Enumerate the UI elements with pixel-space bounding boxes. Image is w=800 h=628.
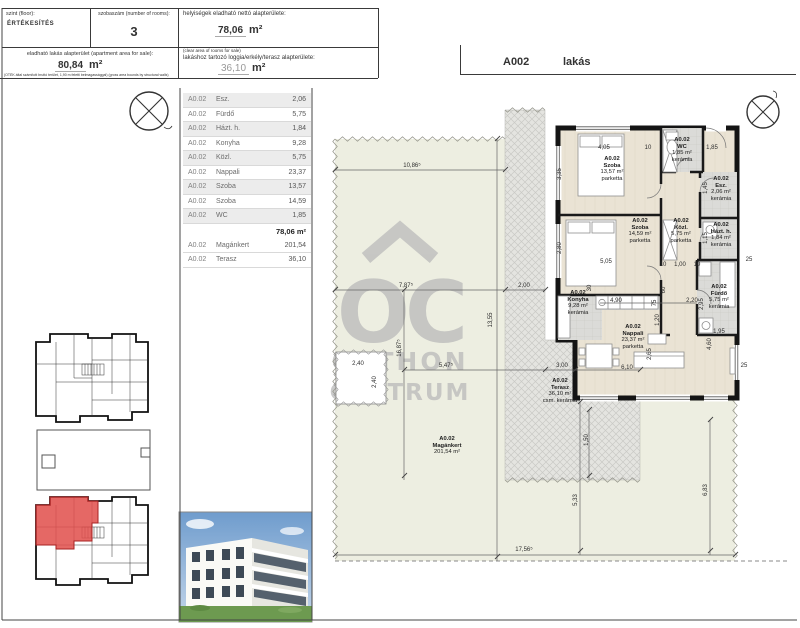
terrace-area-value: 36,10	[218, 63, 249, 75]
dimension-label: 1,85	[706, 145, 718, 151]
dimension-label: 6,10	[621, 365, 633, 371]
dimension-label: 4,60	[707, 338, 713, 350]
table-row: A0.02 Nappali 23,37	[183, 166, 311, 181]
dimension-label: 16,87⁵	[397, 339, 403, 357]
dimension-label: 6,83	[703, 484, 709, 496]
dimension-label: 1,15	[703, 232, 709, 244]
net-area-unit: m²	[249, 24, 262, 36]
sale-area-unit: m²	[89, 59, 102, 71]
dimension-label: 1,95	[713, 329, 725, 335]
dimension-label: 25	[741, 363, 748, 369]
dimension-label: 7,87⁵	[399, 283, 413, 289]
unit-type: lakás	[563, 56, 591, 68]
room-label: A0.02Esz.2,06 m²kerámia	[711, 176, 732, 202]
terrace-area-label: lakáshoz tartozó loggia/erkély/terasz al…	[183, 55, 315, 61]
unit-id: A002	[503, 56, 529, 68]
table-row: A0.02 Esz. 2,06	[183, 93, 311, 108]
dimension-label: 2,95	[699, 298, 705, 310]
table-total: 78,06 m²	[183, 224, 311, 239]
dimension-label: 3,35	[557, 168, 563, 180]
dimension-label: 2,40	[352, 361, 364, 367]
dimension-label: 5,05	[600, 259, 612, 265]
net-area-value: 78,06	[215, 25, 246, 37]
dimension-label: 17,56⁵	[515, 547, 533, 553]
dimension-label: 10,86⁵	[403, 163, 421, 169]
room-label: A0.02Nappali23,37 m²parketta	[622, 324, 645, 350]
dimension-label: 4,90	[610, 298, 622, 304]
table-row: A0.02 Terasz 36,10	[183, 253, 311, 268]
sale-area-note: (OTÉK által számított bruttó terület, 1,…	[4, 73, 178, 77]
floorplan-sheet: OC OTTHON CENTRUM	[0, 0, 800, 628]
room-label: A0.02Terasz36,10 m²csm. kerámia	[543, 378, 577, 404]
dimension-label: 1,45	[703, 182, 709, 194]
room-label: A0.02Közl.5,75 m²parketta	[671, 218, 692, 244]
table-row: A0.02 Közl. 5,75	[183, 151, 311, 166]
table-row: A0.02 Fürdő 5,75	[183, 108, 311, 123]
dimension-label: 3,00	[556, 363, 568, 369]
table-row: A0.02 Szoba 13,57	[183, 180, 311, 195]
room-label: A0.02Szoba14,59 m²parketta	[629, 218, 652, 244]
sale-area-label: eladható lakás alapterület (apartment ar…	[2, 51, 178, 57]
room-label: A0.02Fürdő5,75 m²kerámia	[709, 284, 730, 310]
dimension-label: 60	[661, 287, 667, 294]
room-label: A0.02Konyha9,28 m²kerámia	[567, 290, 588, 316]
room-rows: A0.02 Esz. 2,06 A0.02 Fürdő 5,75 A0.02 H…	[183, 93, 311, 224]
floor-value: ÉRTÉKESÍTÉS	[7, 21, 54, 27]
title-header: szint (floor): ÉRTÉKESÍTÉS szobaszám (nu…	[0, 0, 800, 90]
table-row: A0.02 Konyha 9,28	[183, 137, 311, 152]
rooms-label: szobaszám (number of rooms):	[91, 11, 177, 17]
dimension-label: 2,80	[557, 242, 563, 254]
extra-rows: A0.02 Magánkert 201,54 A0.02 Terasz 36,1…	[183, 239, 311, 268]
dimension-label: 2,65	[647, 348, 653, 360]
floor-label: szint (floor):	[6, 11, 35, 17]
table-row: A0.02 WC 1,85	[183, 209, 311, 224]
dimension-label: 5,33	[573, 494, 579, 506]
dimension-label: 2,40	[372, 376, 378, 388]
net-area-note: (clear area of rooms for sale)	[183, 48, 241, 53]
table-row: A0.02 Magánkert 201,54	[183, 239, 311, 254]
room-label: A0.02WC1,85 m²kerámia	[672, 137, 693, 163]
room-area-table: A0.02 Esz. 2,06 A0.02 Fürdő 5,75 A0.02 H…	[183, 93, 311, 268]
dimension-label: 10	[694, 262, 701, 268]
sale-area-value: 80,84	[55, 60, 86, 72]
rooms-value: 3	[91, 24, 177, 39]
room-label: A0.02Házt. h.1,84 m²kerámia	[711, 222, 732, 248]
dimension-label: 1,00	[674, 262, 686, 268]
dimension-label: 2,00	[518, 283, 530, 289]
table-row: A0.02 Házt. h. 1,84	[183, 122, 311, 137]
dimension-label: 13,55	[488, 312, 494, 327]
dimension-label: 10	[660, 262, 667, 268]
terrace-area-unit: m²	[252, 62, 265, 74]
net-area-label: helyiségek eladható nettó alapterülete:	[183, 11, 286, 17]
room-label: A0.02Magánkert201,54 m²	[433, 436, 462, 456]
dimension-label: 5,47⁵	[439, 363, 453, 369]
room-label: A0.02Szoba13,57 m²parketta	[601, 156, 624, 182]
plan-text-overlay: 10,86⁵7,87⁵2,0013,5516,87⁵5,47⁵3,002,402…	[0, 0, 800, 628]
dimension-label: 1,20	[655, 314, 661, 326]
dimension-label: 1,50	[584, 434, 590, 446]
dimension-label: 75	[652, 300, 658, 307]
dimension-label: 25	[746, 257, 753, 263]
dimension-label: 4,05	[598, 145, 610, 151]
table-row: A0.02 Szoba 14,59	[183, 195, 311, 210]
dimension-label: 10	[645, 145, 652, 151]
dimension-label: 2,20	[686, 298, 698, 304]
